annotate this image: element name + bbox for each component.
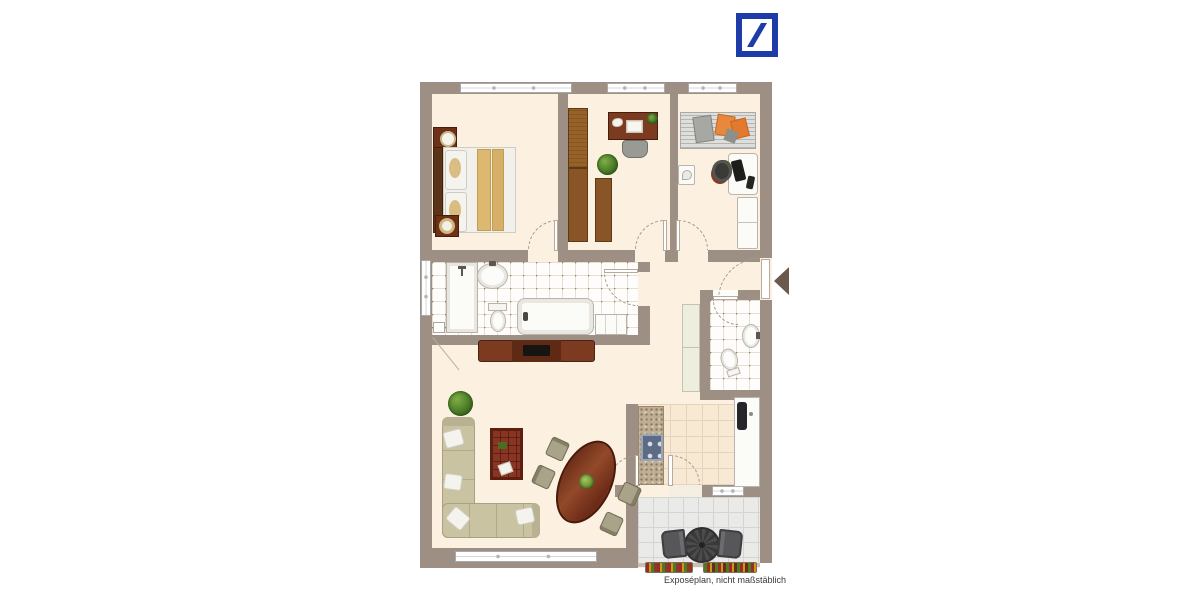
- wall-mid-2: [558, 250, 635, 262]
- wall-right: [760, 82, 772, 563]
- study-wardrobe-top: [568, 108, 588, 168]
- entrance-arrow-icon: [774, 267, 789, 295]
- desk-plant: [647, 113, 658, 124]
- wc-sink-faucet-icon: [756, 332, 760, 339]
- pillow-accent-top: [449, 158, 461, 178]
- sofa-pillow-2: [443, 473, 463, 491]
- floor-plan-page: Exposéplan, nicht maßstäblich: [0, 0, 1200, 600]
- sideboard-tv: [523, 345, 550, 356]
- living-room-window: [455, 551, 597, 562]
- dining-centerpiece: [579, 474, 594, 489]
- desk-phone: [612, 118, 623, 127]
- study-plant: [597, 154, 618, 175]
- bath-shelf: [595, 314, 627, 335]
- desk-open-book: [626, 120, 643, 133]
- wall-wc-top-1: [700, 290, 713, 300]
- wc-door-leaf: [713, 296, 738, 300]
- wall-wc-left: [700, 300, 710, 390]
- kitchen-balcony-door-leaf: [668, 455, 673, 486]
- bed-blanket-1: [477, 149, 491, 231]
- bathtub: [517, 298, 594, 335]
- radiator: [433, 322, 445, 333]
- flower-box-left: [645, 562, 693, 573]
- wall-mid-1: [420, 250, 528, 262]
- balcony-table-center: [699, 542, 705, 548]
- hall-cabinet: [682, 304, 700, 392]
- balcony-chair-left: [661, 529, 688, 559]
- bedroom-door-leaf: [554, 220, 558, 251]
- utility-wardrobe: [737, 197, 758, 249]
- utility-shelf-item: [682, 170, 692, 180]
- shower-pipe-icon: [461, 269, 463, 276]
- wall-bath-right-b: [638, 306, 650, 335]
- wall-bedroom-study: [558, 94, 568, 250]
- bathroom-door-gap: [638, 272, 650, 306]
- utility-office-chair: [712, 160, 732, 182]
- utility-door-gap: [678, 250, 708, 262]
- floor-plan: [420, 82, 772, 582]
- toilet-bowl: [490, 310, 506, 332]
- study-door-leaf: [663, 220, 667, 251]
- bathtub-faucet-icon: [523, 312, 528, 321]
- nightstand-lamp: [440, 131, 456, 147]
- kitchen-sink: [737, 402, 747, 430]
- balcony-chair-right: [717, 529, 744, 559]
- sink-faucet-icon: [489, 261, 496, 266]
- bedroom-door-gap: [528, 250, 558, 262]
- kitchen-window: [712, 486, 744, 496]
- rug-pattern-green: [498, 442, 507, 449]
- study-window: [607, 83, 665, 93]
- living-balcony-door-gap: [638, 485, 670, 497]
- study-wardrobe-bottom: [568, 168, 588, 242]
- laundry-gray-towel: [692, 115, 714, 143]
- wall-mid-3: [665, 250, 678, 262]
- utility-door-leaf: [676, 220, 680, 251]
- bathroom-window: [421, 260, 431, 316]
- entrance-door-leaf: [761, 259, 770, 299]
- bathroom-door-leaf: [604, 269, 638, 273]
- bathroom-sink: [477, 263, 508, 289]
- deutsche-bank-slash-icon: [736, 13, 778, 57]
- bedroom-window: [460, 83, 572, 93]
- study-office-chair: [622, 140, 648, 158]
- deutsche-bank-logo: [736, 13, 778, 57]
- flower-box-right: [703, 562, 757, 573]
- stool-cushion: [439, 218, 455, 234]
- cooktop: [641, 434, 663, 461]
- utility-wardrobe-divider: [737, 222, 758, 223]
- living-plant: [448, 391, 473, 416]
- kitchen-sink-faucet-icon: [749, 412, 753, 416]
- hall-cabinet-divider: [682, 347, 700, 348]
- bed-blanket-2: [492, 149, 504, 231]
- study-door-gap: [635, 250, 665, 262]
- utility-window: [688, 83, 737, 93]
- sofa-armrest-top: [442, 417, 475, 426]
- study-low-cabinet: [595, 178, 612, 242]
- wall-left: [420, 82, 432, 568]
- kitchen-balcony-door-gap: [670, 485, 702, 497]
- wall-bath-right-a: [638, 262, 650, 272]
